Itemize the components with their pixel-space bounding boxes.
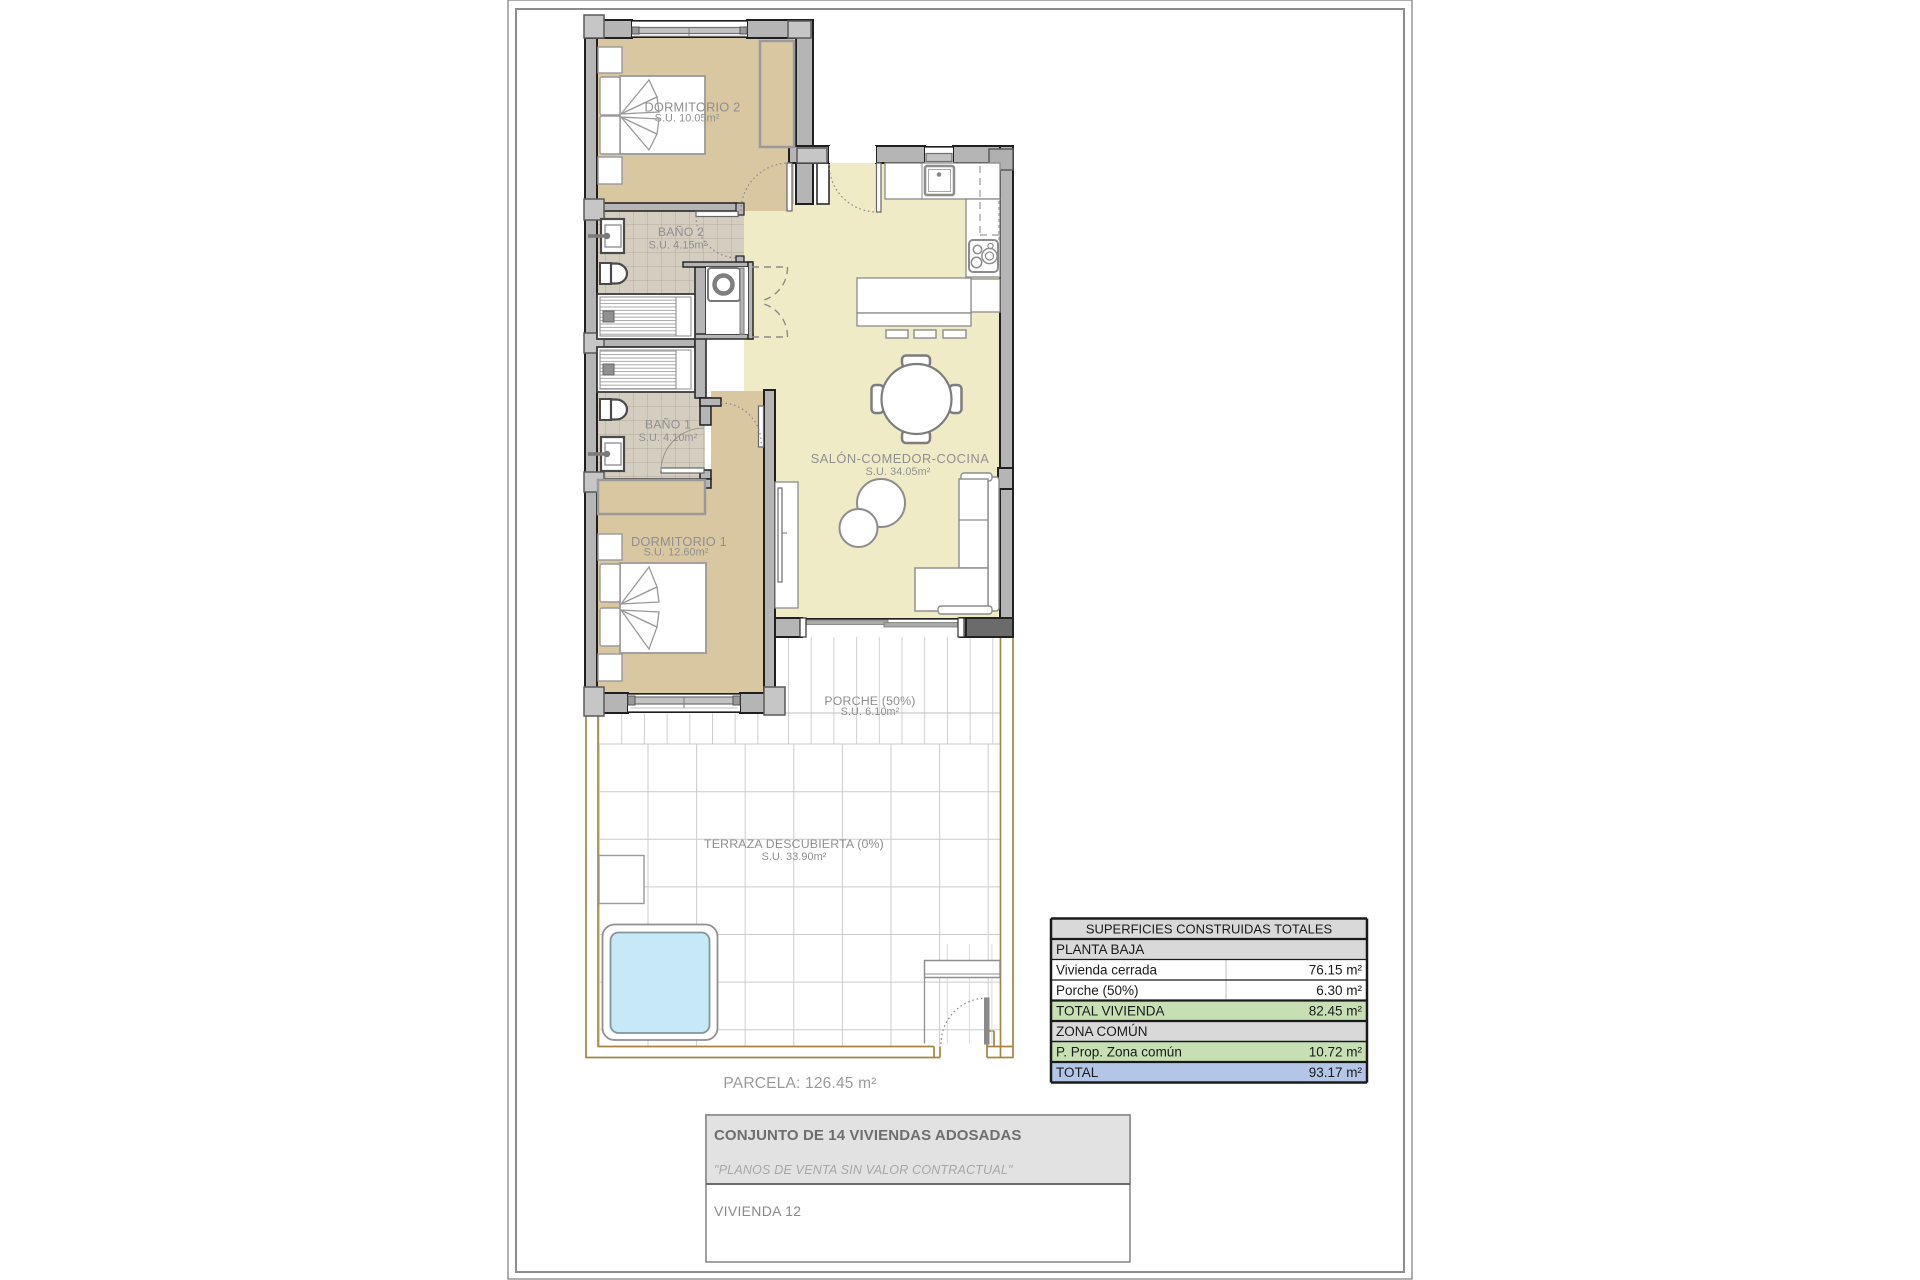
svg-text:TERRAZA DESCUBIERTA (0%): TERRAZA DESCUBIERTA (0%) [704,837,884,851]
svg-text:S.U. 10.05m²: S.U. 10.05m² [655,113,720,125]
svg-text:PARCELA: 126.45 m²: PARCELA: 126.45 m² [723,1075,876,1092]
svg-text:S.U. 4.15m²: S.U. 4.15m² [649,240,708,252]
svg-text:ZONA COMÚN: ZONA COMÚN [1056,1024,1148,1039]
svg-text:TOTAL: TOTAL [1056,1065,1099,1080]
svg-text:Vivienda cerrada: Vivienda cerrada [1056,962,1158,977]
svg-text:BAÑO 2: BAÑO 2 [658,225,704,239]
svg-text:82.45 m²: 82.45 m² [1309,1003,1363,1018]
svg-text:S.U. 34.05m²: S.U. 34.05m² [866,466,931,478]
svg-text:SUPERFICIES CONSTRUIDAS TOTALE: SUPERFICIES CONSTRUIDAS TOTALES [1086,921,1333,936]
svg-text:S.U. 6.10m²: S.U. 6.10m² [841,706,900,718]
svg-text:S.U. 4.10m²: S.U. 4.10m² [639,432,698,444]
svg-text:PLANTA BAJA: PLANTA BAJA [1056,942,1144,957]
svg-text:S.U. 33.90m²: S.U. 33.90m² [762,851,827,863]
svg-text:6.30 m²: 6.30 m² [1316,983,1362,998]
svg-text:BAÑO 1: BAÑO 1 [645,418,691,432]
svg-text:10.72 m²: 10.72 m² [1309,1044,1363,1059]
svg-text:S.U. 12.60m²: S.U. 12.60m² [644,547,709,559]
svg-text:Porche (50%): Porche (50%) [1056,983,1139,998]
svg-text:CONJUNTO DE 14 VIVIENDAS ADOSA: CONJUNTO DE 14 VIVIENDAS ADOSADAS [714,1127,1022,1144]
svg-text:TOTAL VIVIENDA: TOTAL VIVIENDA [1056,1003,1165,1018]
svg-text:VIVIENDA 12: VIVIENDA 12 [714,1203,801,1219]
svg-text:"PLANOS DE VENTA SIN VALOR CON: "PLANOS DE VENTA SIN VALOR CONTRACTUAL" [714,1163,1013,1177]
svg-text:93.17 m²: 93.17 m² [1309,1065,1363,1080]
svg-text:76.15 m²: 76.15 m² [1309,962,1363,977]
svg-text:P. Prop. Zona común: P. Prop. Zona común [1056,1044,1182,1059]
svg-text:SALÓN-COMEDOR-COCINA: SALÓN-COMEDOR-COCINA [811,451,990,466]
